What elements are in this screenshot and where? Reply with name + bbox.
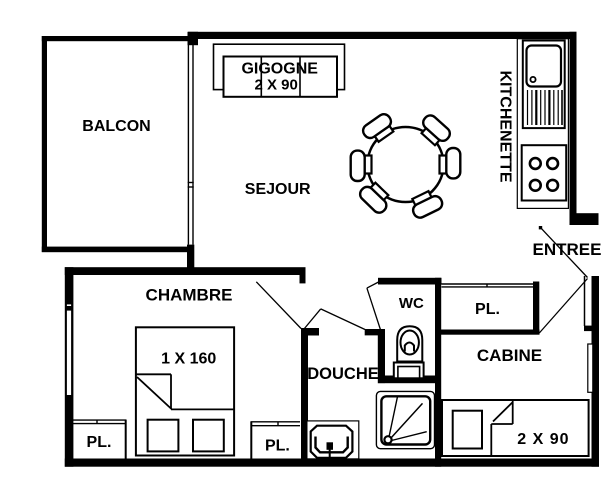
svg-text:1 X 160: 1 X 160 xyxy=(161,350,216,367)
svg-text:WC: WC xyxy=(399,295,424,312)
svg-text:PL.: PL. xyxy=(475,301,500,318)
svg-text:GIGOGNE: GIGOGNE xyxy=(241,60,318,77)
svg-text:CHAMBRE: CHAMBRE xyxy=(146,286,233,305)
svg-text:PL.: PL. xyxy=(87,434,112,451)
svg-text:2 X 90: 2 X 90 xyxy=(517,431,569,448)
svg-text:KITCHENETTE: KITCHENETTE xyxy=(497,71,514,183)
svg-text:BALCON: BALCON xyxy=(82,118,150,135)
svg-text:PL.: PL. xyxy=(265,438,290,455)
svg-text:SEJOUR: SEJOUR xyxy=(245,181,311,198)
svg-text:DOUCHE: DOUCHE xyxy=(307,365,379,383)
svg-text:CABINE: CABINE xyxy=(477,346,542,365)
svg-text:2 X 90: 2 X 90 xyxy=(255,77,298,94)
